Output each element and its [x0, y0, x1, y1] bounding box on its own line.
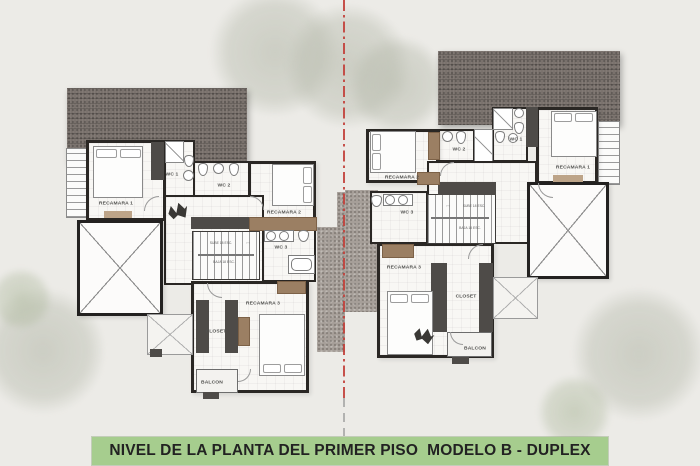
sink-icon [398, 195, 408, 205]
shower-icon [474, 129, 493, 162]
pillow-icon [411, 294, 429, 303]
wall-closet-strip [438, 182, 496, 195]
sink-icon [442, 131, 453, 142]
stair-note-down: BAJA 18 ESC. [459, 226, 481, 230]
pillow-icon [390, 294, 408, 303]
shower-icon [493, 108, 513, 130]
bench-icon [553, 175, 583, 182]
room-label-recamara3: RECAMARA 3 [387, 264, 421, 270]
room-label-recamara1: RECAMARA 1 [556, 164, 590, 170]
room-label-closet: CLOSET [456, 293, 477, 299]
plan-title: NIVEL DE LA PLANTA DEL PRIMER PISO MODEL… [109, 442, 590, 460]
entry-step [452, 357, 469, 364]
room-label-wc2: WC 2 [453, 146, 466, 152]
property-centerline [336, 0, 352, 442]
closet-strip [431, 263, 447, 332]
closet-strip [479, 263, 493, 332]
closet-strip [526, 107, 538, 147]
room-label-wc1: WC 1 [510, 136, 523, 142]
terrace-right [493, 277, 538, 319]
double-height-space-right [527, 182, 609, 279]
pillow-icon [575, 113, 593, 122]
dresser-icon [382, 244, 414, 258]
wood-shelf [428, 132, 440, 160]
stair-note-arrows: › ‹ [446, 204, 449, 208]
sink-icon [385, 195, 395, 205]
sink-icon [514, 108, 524, 118]
plan-title-bar: NIVEL DE LA PLANTA DEL PRIMER PISO MODEL… [92, 437, 608, 465]
stair-note-up: SUBE 18 ESC. [463, 204, 486, 208]
pillow-icon [372, 134, 381, 151]
site-plan: RECAMARA 1 WC 1 WC 2 RECAMARA 2 WC 3 REC… [0, 0, 700, 466]
stairs-right [427, 194, 496, 244]
room-label-recamara2: RECAMARA 2 [385, 174, 419, 180]
pillow-icon [554, 113, 572, 122]
stair-rail [431, 217, 489, 219]
room-label-wc3: WC 3 [401, 209, 414, 215]
room-label-balcon: BALCON [464, 345, 486, 351]
wood-shelf [417, 172, 440, 185]
exterior-stairs-icon [598, 121, 620, 185]
pillow-icon [372, 153, 381, 170]
